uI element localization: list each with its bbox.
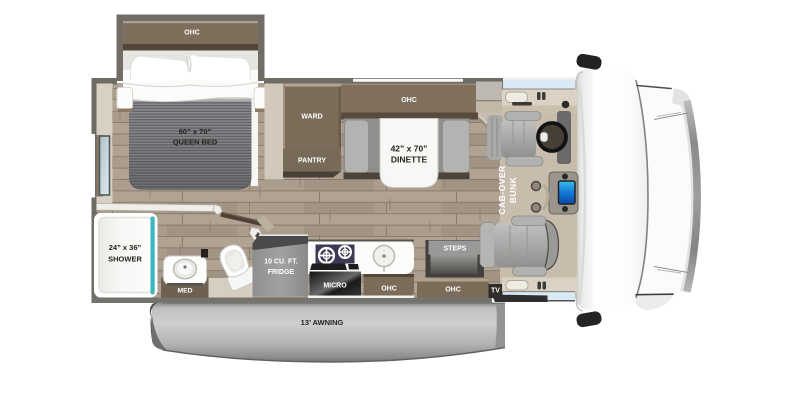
svg-text:13’ AWNING: 13’ AWNING xyxy=(301,318,344,327)
svg-text:24” x 36”: 24” x 36” xyxy=(109,243,142,252)
svg-text:WARD: WARD xyxy=(301,114,322,121)
svg-text:OHC: OHC xyxy=(445,287,461,294)
svg-text:OHC: OHC xyxy=(381,286,397,293)
svg-text:QUEEN BED: QUEEN BED xyxy=(173,138,218,147)
svg-text:PANTRY: PANTRY xyxy=(298,158,326,165)
svg-text:FRIDGE: FRIDGE xyxy=(268,269,295,276)
svg-text:42” x 70”: 42” x 70” xyxy=(391,144,428,154)
svg-text:TV: TV xyxy=(491,288,500,295)
svg-text:OHC: OHC xyxy=(184,30,200,37)
svg-text:10 CU. FT.: 10 CU. FT. xyxy=(264,259,298,266)
svg-text:60” x 70”: 60” x 70” xyxy=(179,127,212,136)
svg-text:BUNK: BUNK xyxy=(508,176,518,203)
svg-text:CAB-OVER: CAB-OVER xyxy=(497,165,507,214)
svg-text:MED: MED xyxy=(177,288,192,295)
svg-text:SHOWER: SHOWER xyxy=(108,255,142,264)
svg-text:STEPS: STEPS xyxy=(444,246,467,253)
svg-text:MICRO: MICRO xyxy=(323,283,347,290)
svg-text:DINETTE: DINETTE xyxy=(391,155,428,165)
svg-text:OHC: OHC xyxy=(401,97,417,104)
